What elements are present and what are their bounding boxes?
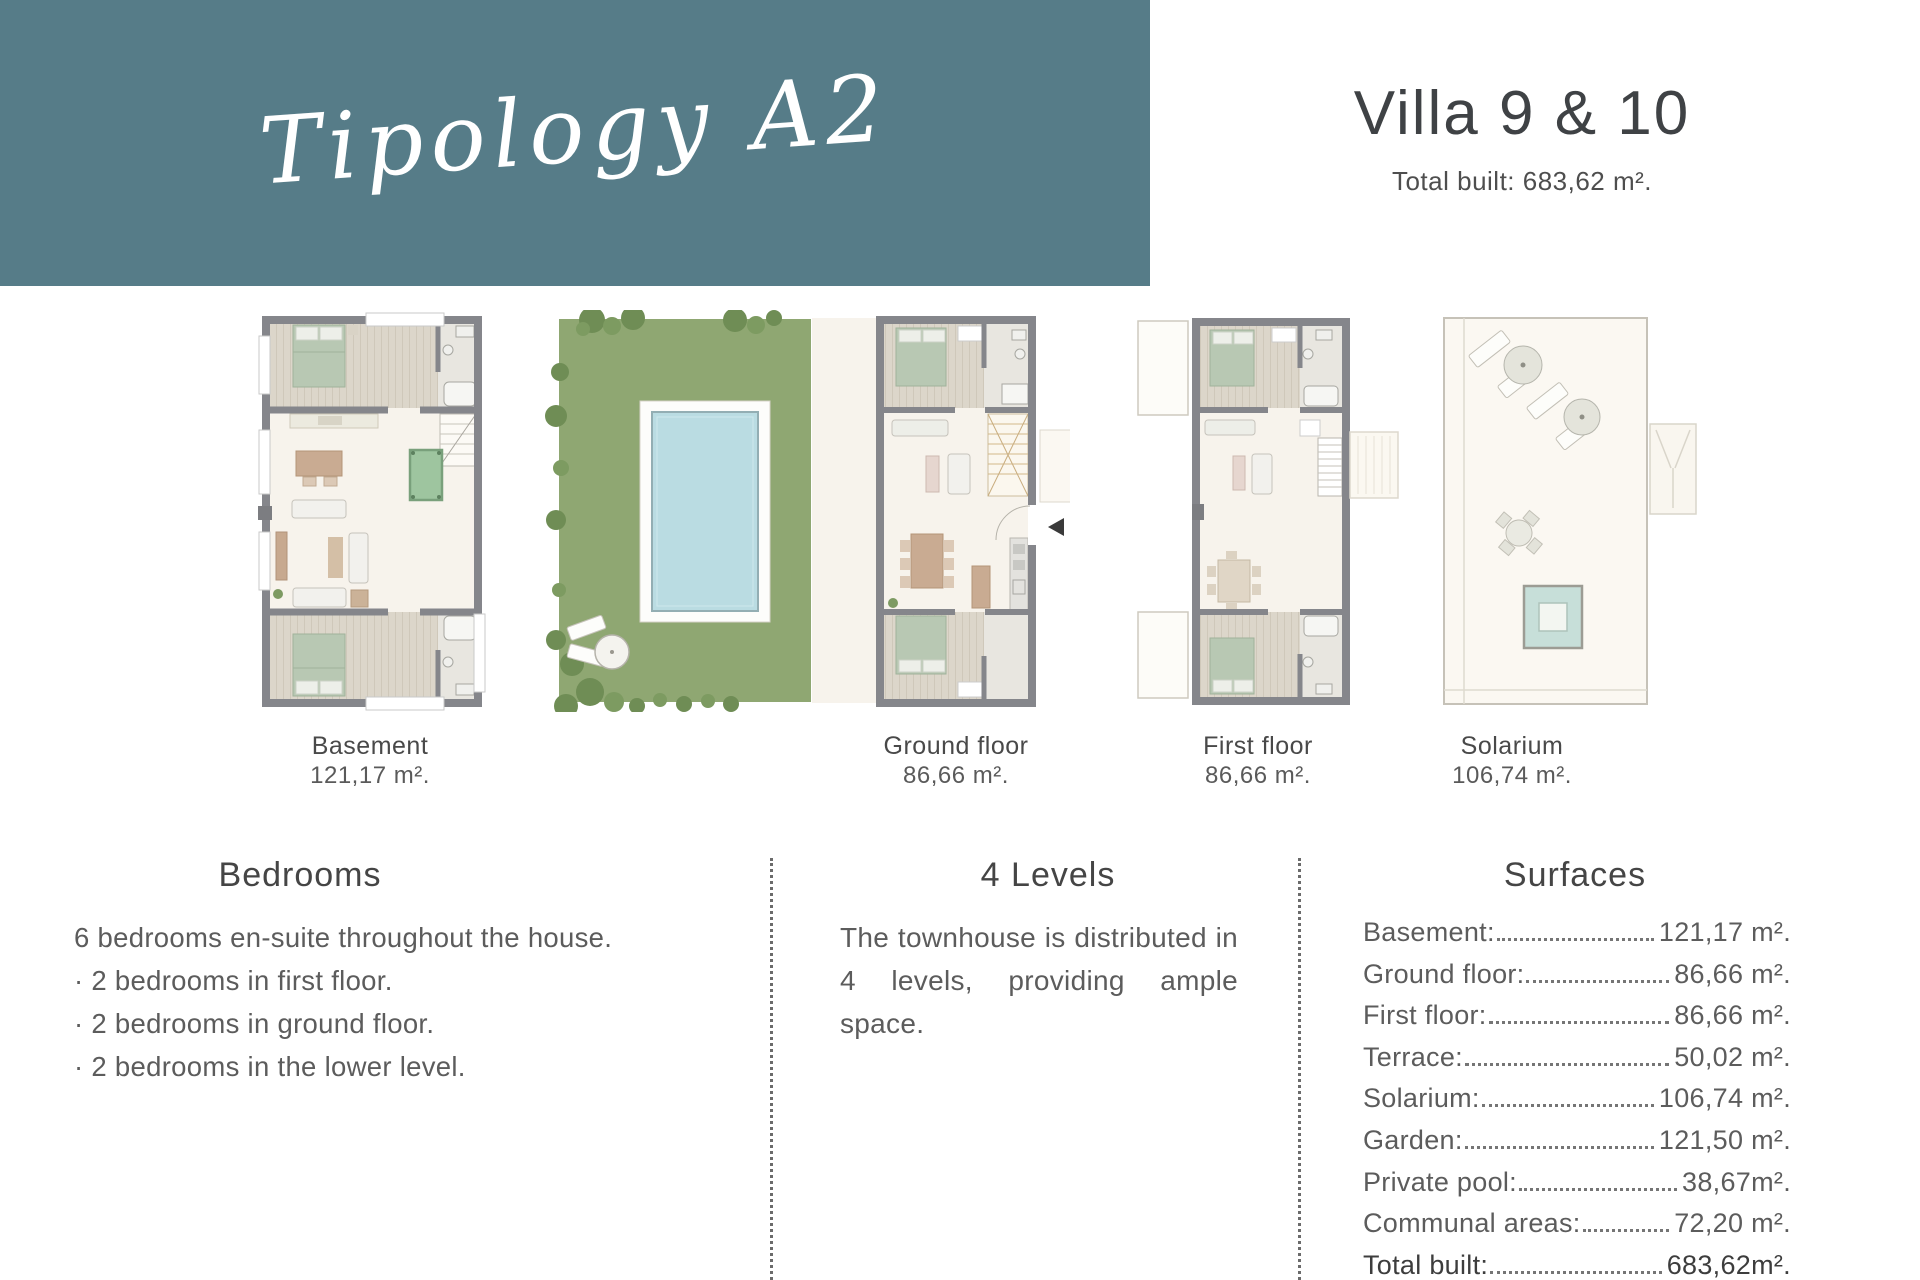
surface-value: 121,17 m². [1659,917,1791,948]
levels-title: 4 Levels [981,856,1116,895]
surface-row: Private pool: 38,67m². [1363,1167,1791,1209]
basement-label: Basement 121,17 m². [310,731,430,791]
plan-area: 106,74 m². [1452,761,1572,791]
surface-label: Private pool: [1363,1167,1517,1198]
surface-label: Total built: [1363,1250,1488,1280]
section-divider-left [770,858,773,1280]
plan-area: 86,66 m². [884,761,1029,791]
bedrooms-title: Bedrooms [219,856,382,895]
solarium-label: Solarium 106,74 m². [1452,731,1572,791]
plan-name: Basement [310,731,430,761]
ground-stairs [988,414,1028,496]
surface-value: 86,66 m². [1674,959,1791,990]
leader-dots [1497,938,1654,941]
surface-row: Communal areas: 72,20 m². [1363,1208,1791,1250]
surface-label: Garden: [1363,1125,1463,1156]
surface-row: First floor: 86,66 m². [1363,1000,1791,1042]
plan-name: First floor [1203,731,1313,761]
surface-value: 86,66 m². [1674,1000,1791,1031]
surface-value: 121,50 m². [1659,1125,1791,1156]
levels-text: The townhouse is distributed in 4 levels… [840,916,1238,1045]
leader-dots [1465,1063,1669,1066]
section-divider-right [1298,858,1301,1280]
brochure-page: Tipology A2 Villa 9 & 10 Total built: 68… [0,0,1920,1280]
first-annex-ghost [1350,432,1398,498]
first-floor-floorplan [1130,310,1405,712]
surface-row: Ground floor: 86,66 m². [1363,959,1791,1001]
solarium-floorplan [1438,310,1702,712]
surface-label: Ground floor: [1363,959,1524,990]
leader-dots [1489,1021,1670,1024]
surface-label: Solarium: [1363,1083,1480,1114]
leader-dots [1583,1229,1670,1232]
ground-floor-label: Ground floor 86,66 m². [884,731,1029,791]
surface-row: Garden: 121,50 m². [1363,1125,1791,1167]
total-built-subtitle: Total built: 683,62 m². [1392,166,1652,197]
bedrooms-bullet: · 2 bedrooms in the lower level. [74,1045,612,1088]
leader-dots [1482,1104,1654,1107]
surface-value: 38,67m². [1682,1167,1791,1198]
villa-title: Villa 9 & 10 [1354,78,1691,149]
surface-row: Terrace: 50,02 m². [1363,1042,1791,1084]
plan-name: Ground floor [884,731,1029,761]
surface-value: 72,20 m². [1674,1208,1791,1239]
leader-dots [1526,980,1669,983]
plan-area: 86,66 m². [1203,761,1313,791]
surface-row-total: Total built: 683,62m². [1363,1250,1791,1280]
garden [545,310,812,712]
surface-row: Basement: 121,17 m². [1363,917,1791,959]
plan-area: 121,17 m². [310,761,430,791]
surface-value: 683,62m². [1667,1250,1791,1280]
bedrooms-bullet: · 2 bedrooms in ground floor. [74,1002,612,1045]
solarium-stair-access [1650,424,1696,514]
ground-annex-ghost [1040,430,1070,502]
ground-terrace [812,318,880,703]
leader-dots [1490,1271,1662,1274]
bedrooms-text: 6 bedrooms en-suite throughout the house… [74,916,612,1088]
surface-label: Basement: [1363,917,1495,948]
surface-value: 106,74 m². [1659,1083,1791,1114]
surface-label: Terrace: [1363,1042,1463,1073]
plunge-pool [1524,586,1582,648]
leader-dots [1465,1146,1654,1149]
private-pool [640,401,770,622]
ground-floor-floorplan [545,310,1070,712]
bedrooms-intro: 6 bedrooms en-suite throughout the house… [74,916,612,959]
leader-dots [1519,1188,1677,1191]
surface-label: First floor: [1363,1000,1487,1031]
surface-value: 50,02 m². [1674,1042,1791,1073]
basement-floorplan [255,310,500,712]
surfaces-title: Surfaces [1504,856,1646,895]
entrance-arrow-icon [1048,518,1064,536]
surface-row: Solarium: 106,74 m². [1363,1083,1791,1125]
surface-label: Communal areas: [1363,1208,1581,1239]
terrace-top [1138,321,1188,415]
first-stairs [1318,438,1342,496]
terrace-bottom [1138,612,1188,698]
first-floor-label: First floor 86,66 m². [1203,731,1313,791]
surfaces-table: Basement: 121,17 m². Ground floor: 86,66… [1363,917,1791,1280]
plan-name: Solarium [1452,731,1572,761]
bedrooms-bullet: · 2 bedrooms in first floor. [74,959,612,1002]
